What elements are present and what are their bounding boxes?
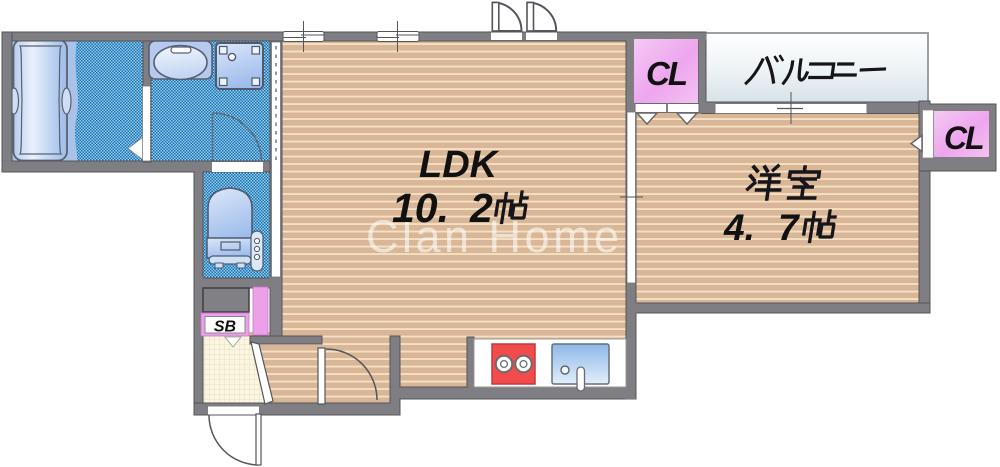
svg-text:4.: 4. xyxy=(723,207,755,248)
svg-text:10.: 10. xyxy=(392,185,449,231)
svg-text:2: 2 xyxy=(469,185,493,231)
svg-text:CL: CL xyxy=(944,120,983,156)
svg-text:CL: CL xyxy=(646,55,687,92)
svg-text:7: 7 xyxy=(778,207,801,248)
svg-text:SB: SB xyxy=(214,319,236,336)
svg-text:LDK: LDK xyxy=(419,144,500,186)
